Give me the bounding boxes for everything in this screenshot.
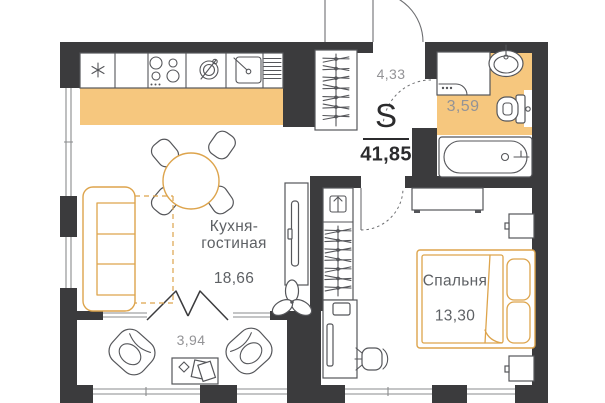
monitor-icon — [327, 324, 333, 366]
hallway-area-label: 4,33 — [377, 66, 406, 82]
kitchen-living-label: Кухня- гостиная 18,66 — [201, 200, 266, 306]
kitchen-counter — [80, 53, 283, 88]
balcony-partition-sill-right — [233, 313, 270, 317]
window-left-upper — [64, 88, 73, 196]
balcony-armchair — [221, 323, 278, 379]
balcony-rug — [172, 358, 218, 384]
total-area-symbol: S — [375, 97, 397, 135]
office-chair-icon — [355, 348, 388, 370]
bathroom-area-label: 3,59 — [447, 98, 480, 116]
sofa — [83, 187, 135, 311]
nightstand — [505, 356, 534, 381]
bedroom-area: 13,30 — [423, 308, 487, 326]
kitchen-living-name: Кухня- гостиная — [201, 218, 266, 252]
kitchen-living-area: 18,66 — [201, 270, 266, 288]
bedroom-label: Спальня 13,30 — [423, 255, 487, 344]
window-bedroom-bottom-2 — [467, 389, 515, 394]
floor-plan: 4,33 3,59 3,94 S 41,85 Кухня- гостиная 1… — [0, 0, 605, 403]
bedroom-door — [361, 188, 403, 230]
dresser — [412, 188, 483, 213]
bedroom-name: Спальня — [423, 273, 487, 290]
bedroom-wardrobe — [323, 188, 353, 300]
total-area-value: 41,85 — [360, 144, 412, 167]
desk — [323, 300, 357, 378]
kitchen-highlight-zone — [80, 88, 283, 125]
window-balcony-bottom — [93, 387, 200, 396]
bathtub-icon — [439, 137, 532, 177]
entrance-door — [325, 0, 423, 42]
balcony-armchair — [104, 324, 161, 380]
window-bedroom-bottom — [345, 387, 432, 396]
window-left-lower — [66, 237, 71, 288]
window-balcony-bottom-2 — [237, 389, 287, 394]
printer-icon — [333, 303, 350, 315]
dining-chair — [206, 128, 239, 162]
washing-machine-icon — [437, 52, 490, 95]
floor-plan-drawing — [0, 0, 605, 403]
balcony-partition-sill-left — [103, 313, 147, 317]
hallway-closet — [315, 50, 357, 130]
total-area-rule — [363, 138, 409, 140]
nightstand — [505, 214, 534, 238]
balcony-area-label: 3,94 — [177, 332, 206, 348]
tv-stand — [285, 183, 308, 285]
